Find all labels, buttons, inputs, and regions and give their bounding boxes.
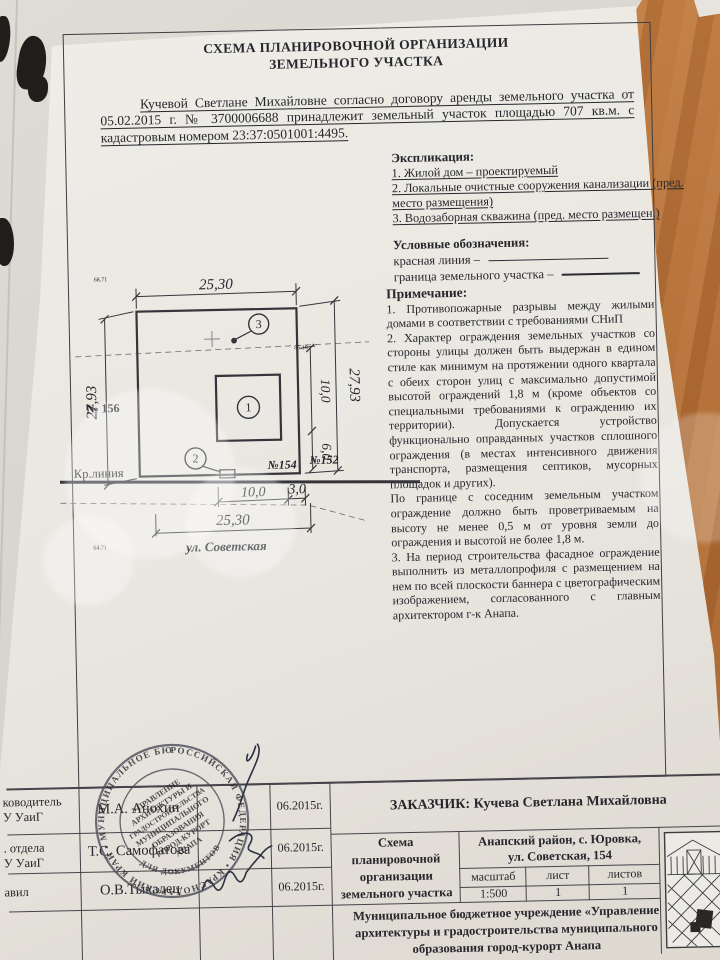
organization-cell: Муниципальное бюджетное учреждение «Упра…	[332, 899, 681, 960]
well-point	[232, 338, 237, 343]
signature-stroke	[202, 846, 273, 891]
dim-top-label: 25,30	[199, 277, 234, 294]
signature-stroke	[232, 744, 261, 821]
sheets-value-cell: 1	[591, 883, 660, 899]
marker-house-number: 1	[245, 400, 251, 414]
dim-right-upper-label: 10,0	[318, 379, 333, 403]
boundary-symbol	[562, 272, 640, 276]
explication-section: Экспликация: 1. Жилой дом – проектируемы…	[391, 145, 689, 226]
customer-cell: ЗАКАЗЧИК: Кучева Светлана Михайловна	[329, 773, 720, 833]
elevation-right: 85.18	[294, 345, 308, 351]
sheets-label-cell: листов	[590, 864, 659, 884]
scale-value-cell: 1:500	[462, 886, 526, 902]
signatures	[185, 731, 309, 903]
cross-mark	[204, 331, 220, 347]
parcel-152-label: №152	[308, 452, 338, 467]
scale-label-cell: масштаб	[461, 867, 525, 887]
role-fragment-2: . отделаУ УаиГ	[3, 841, 45, 872]
dashed-line	[75, 342, 369, 357]
corner-emblem	[658, 825, 720, 953]
document-content: СХЕМА ПЛАНИРОВОЧНОЙ ОРГАНИЗАЦИИ ЗЕМЕЛЬНО…	[0, 0, 720, 960]
address-cell: Анапский район, с. Юровка,ул. Советская,…	[460, 827, 659, 868]
elevation-top: 68.71	[94, 277, 108, 283]
role-fragment-1: ководительУ УаиГ	[3, 794, 62, 825]
legend-section: Условные обозначения: красная линия – гр…	[393, 231, 690, 285]
parcel-154-label: №154	[267, 457, 297, 472]
role-fragment-3: авил	[4, 885, 28, 901]
marker-well-number: 3	[256, 317, 262, 331]
dim-right-label: 27,93	[346, 368, 363, 402]
red-line-symbol	[488, 257, 608, 261]
sheet-label-cell: лист	[527, 865, 588, 885]
sheet-value-cell: 1	[528, 884, 589, 900]
scheme-name-cell: Схема планировочной организации земельно…	[332, 831, 459, 905]
photo-of-site-plan-document: СХЕМА ПЛАНИРОВОЧНОЙ ОРГАНИЗАЦИИ ЗЕМЕЛЬНО…	[0, 0, 720, 960]
dim-bottom-2-label: 3,0	[287, 482, 306, 497]
